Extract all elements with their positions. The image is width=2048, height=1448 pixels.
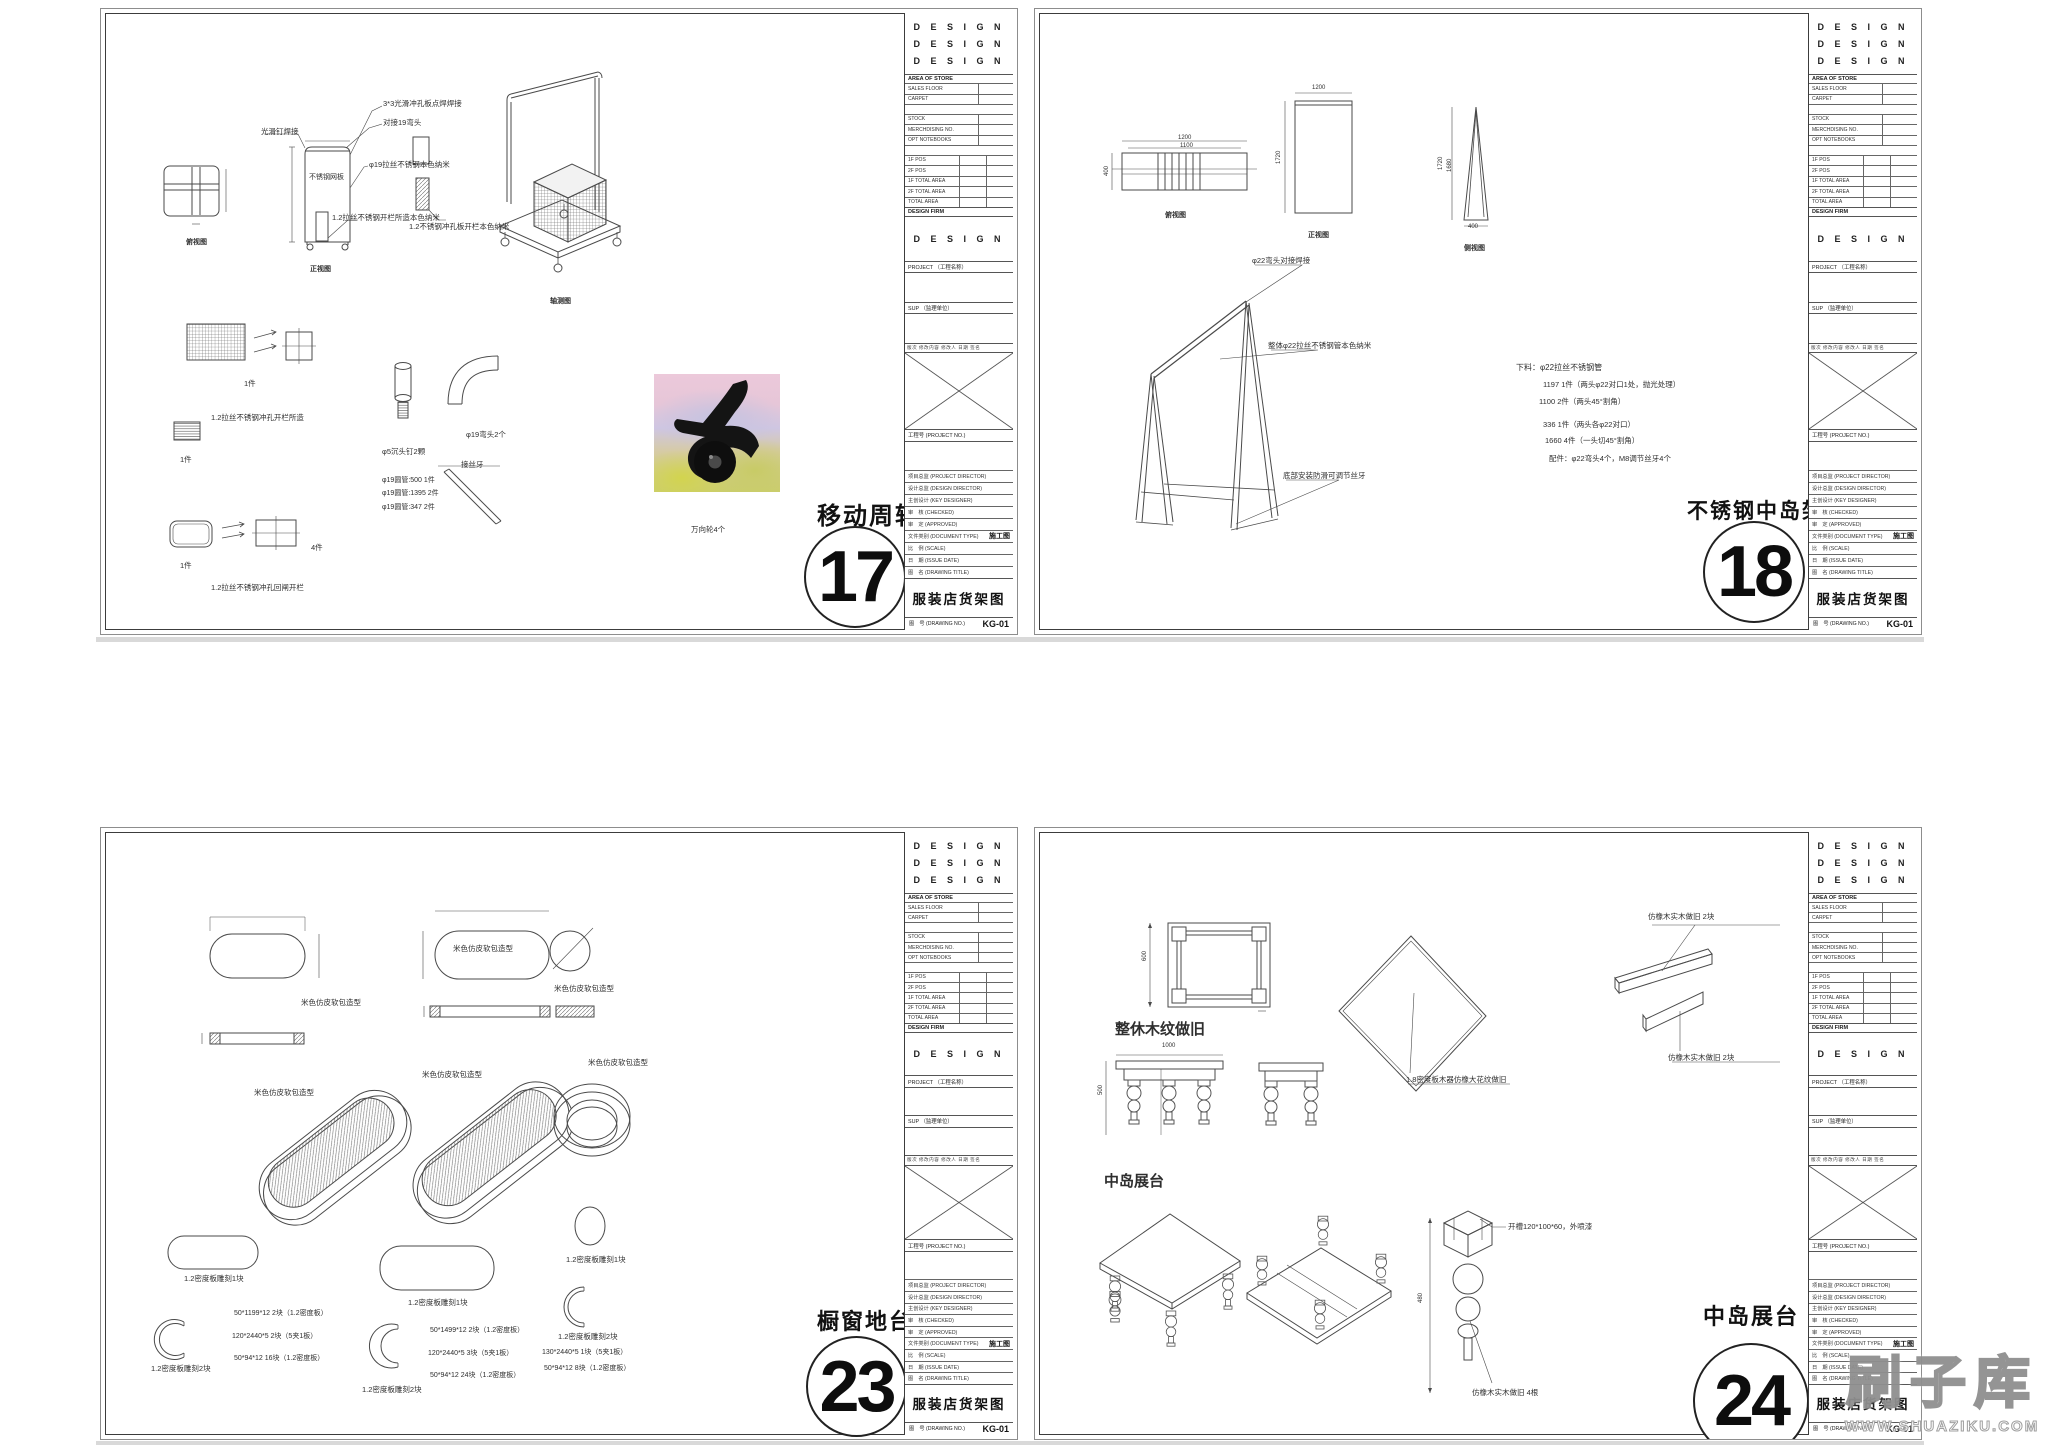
- titleblock-row: STOCK: [905, 114, 1013, 125]
- sheet-23-number: 23: [819, 1351, 893, 1423]
- titleblock-prow: SUP （监理单位）: [905, 1115, 1013, 1126]
- titleblock-row: OPT NOTEBOOKS: [905, 135, 1013, 146]
- titleblock-person: 文件类别 (DOCUMENT TYPE)施工图: [1809, 1337, 1917, 1349]
- titleblock-person: 项目总监 (PROJECT DIRECTOR): [1809, 470, 1917, 482]
- annotation-label: 1200: [1178, 135, 1191, 142]
- titleblock-row: 2F POS: [905, 165, 1013, 176]
- titleblock-person: 文件类别 (DOCUMENT TYPE)施工图: [1809, 530, 1917, 542]
- annotation-label: 1000: [1162, 1043, 1175, 1050]
- annotation-label: 1.2密度板雕刻1块: [566, 1256, 626, 1265]
- sheet-17: 3*3光滑冲孔板点焊焊接对接19弯头光滑钉焊接φ19拉丝不锈钢本色纳米不锈钢网板…: [100, 8, 1018, 635]
- titleblock-person: 审 核 (CHECKED): [1809, 1314, 1917, 1326]
- annotation-label: 1720: [1276, 151, 1283, 164]
- annotation-label: 俯视图: [186, 239, 207, 247]
- annotation-label: 正视图: [1308, 232, 1329, 240]
- titleblock-title: 服装店货架图: [905, 1384, 1013, 1422]
- annotation-label: 50*94*12 16块（1.2密度板）: [234, 1355, 324, 1363]
- annotation-label: 400: [1104, 166, 1111, 176]
- annotation-label: φ22弯头对接焊接: [1252, 257, 1310, 266]
- sheet-18-annotations: 12001100400俯视图12001720正视图17201680400侧视图φ…: [1040, 14, 1808, 629]
- titleblock-no: 图 号 (DRAWING NO.)KG-01: [905, 617, 1013, 630]
- titleblock-box: [905, 1251, 1013, 1280]
- titleblock-x: [1809, 1165, 1917, 1240]
- titleblock-person: 比 例 (SCALE): [1809, 1349, 1917, 1361]
- titleblock-row: 2F TOTAL AREA: [905, 1003, 1013, 1013]
- titleblock-gap: [905, 922, 1013, 931]
- titleblock-person: 主创设计 (KEY DESIGNER): [1809, 1303, 1917, 1315]
- titleblock-x: [905, 352, 1013, 429]
- titleblock-row: MERCHDISING NO.: [905, 124, 1013, 135]
- annotation-label: 开槽120*100*60，外喷漆: [1508, 1223, 1592, 1232]
- titleblock-row: CARPET: [905, 94, 1013, 105]
- titleblock-row: CARPET: [905, 912, 1013, 922]
- titleblock-person: 审 核 (CHECKED): [905, 506, 1013, 518]
- titleblock-h: AREA OF STORE: [1809, 893, 1917, 902]
- titleblock-person: 审 核 (CHECKED): [905, 1314, 1013, 1326]
- cad-sheet-collage: { "watermark": { "brand": "刷子库", "url": …: [0, 0, 2048, 1448]
- titleblock-row: 1F POS: [1809, 155, 1917, 166]
- annotation-label: 底部安装防滑可调节丝牙: [1283, 472, 1366, 481]
- annotation-label: 1.2拉丝不锈钢冲孔开栏所造: [211, 414, 304, 423]
- titleblock-person: 设计总监 (DESIGN DIRECTOR): [1809, 1291, 1917, 1303]
- sheet-23-title-label: 橱窗地台: [817, 1304, 913, 1336]
- titleblock-gap: [1809, 962, 1917, 971]
- titleblock-row: SALES FLOOR: [1809, 902, 1917, 912]
- titleblock-person: 审 核 (CHECKED): [1809, 506, 1917, 518]
- annotation-label: 整体φ22拉丝不锈钢管本色纳米: [1268, 342, 1371, 351]
- annotation-label: 50*94*12 8块（1.2密度板）: [544, 1365, 630, 1373]
- titleblock-row: SALES FLOOR: [905, 902, 1013, 912]
- annotation-label: 1680: [1447, 159, 1454, 172]
- annotation-label: 1720: [1438, 157, 1445, 170]
- sheet-24-annotations: 600整休木纹做旧1000500仿橡木实木做旧 2块仿橡木实木做旧 2块1.8密…: [1040, 833, 1808, 1434]
- titleblock-row: MERCHDISING NO.: [1809, 124, 1917, 135]
- titleblock-gap: [905, 104, 1013, 114]
- titleblock-row: TOTAL AREA: [1809, 197, 1917, 208]
- titleblock-row: 2F TOTAL AREA: [905, 186, 1013, 197]
- titleblock-prow: 工程号 (PROJECT NO.): [905, 1239, 1013, 1250]
- titleblock-h: DESIGN FIRM: [1809, 207, 1917, 216]
- titleblock-person: 图 名 (DRAWING TITLE): [905, 566, 1013, 578]
- titleblock-row: 2F TOTAL AREA: [1809, 186, 1917, 197]
- titleblock-row: STOCK: [1809, 932, 1917, 942]
- annotation-label: 120*2440*5 3块（5夹1板）: [428, 1350, 513, 1358]
- titleblock-h: DESIGN FIRM: [905, 1023, 1013, 1032]
- annotation-label: 400: [1468, 224, 1478, 231]
- titleblock-box: [1809, 313, 1917, 343]
- titleblock-person: 比 例 (SCALE): [1809, 542, 1917, 554]
- titleblock-row: 2F TOTAL AREA: [1809, 1003, 1917, 1013]
- annotation-label: 130*2440*5 1块（5夹1板）: [542, 1349, 627, 1357]
- annotation-label: 1.2密度板雕刻2块: [151, 1365, 211, 1374]
- titleblock-prow: PROJECT （工程名称）: [1809, 1075, 1917, 1086]
- titleblock-row: SALES FLOOR: [1809, 83, 1917, 94]
- sheet-23-annotations: 米色仿皮软包造型米色仿皮软包造型米色仿皮软包造型米色仿皮软包造型米色仿皮软包造型…: [106, 833, 904, 1434]
- titleblock-box: [905, 1127, 1013, 1156]
- sheet-18-number-badge: 18: [1703, 521, 1805, 623]
- annotation-label: 1660 4件（一头切45°割角）: [1545, 437, 1639, 446]
- titleblock-row: TOTAL AREA: [905, 1013, 1013, 1023]
- titleblock-prow: SUP （监理单位）: [1809, 302, 1917, 313]
- titleblock-row: 1F POS: [1809, 972, 1917, 982]
- annotation-label: 下料：φ22拉丝不锈钢管: [1516, 363, 1602, 372]
- titleblock-h: DESIGN FIRM: [905, 207, 1013, 216]
- sheet-23-number-badge: 23: [806, 1336, 907, 1437]
- titleblock-title: 服装店货架图: [1809, 578, 1917, 617]
- titleblock-row: 1F POS: [905, 972, 1013, 982]
- titleblock-title: 服装店货架图: [905, 578, 1013, 617]
- titleblock-x: [905, 1165, 1013, 1240]
- annotation-label: 1100: [1180, 143, 1193, 150]
- annotation-label: 1100 2件（两头45°割角）: [1539, 398, 1625, 407]
- titleblock-row: SALES FLOOR: [905, 83, 1013, 94]
- titleblock-row: MERCHDISING NO.: [905, 942, 1013, 952]
- titleblock-row: 2F POS: [1809, 982, 1917, 992]
- titleblock-row: CARPET: [1809, 94, 1917, 105]
- titleblock-person: 图 名 (DRAWING TITLE): [905, 1372, 1013, 1384]
- titleblock-row: 2F POS: [905, 982, 1013, 992]
- annotation-label: 600: [1142, 951, 1149, 961]
- titleblock-row: OPT NOTEBOOKS: [1809, 135, 1917, 146]
- titleblock-gap: [905, 962, 1013, 971]
- titleblock-revh: 版次 修改内容 修改人 日期 签名: [905, 343, 1013, 353]
- titleblock-person: 设计总监 (DESIGN DIRECTOR): [905, 1291, 1013, 1303]
- titleblock-firm: D E S I G N: [1809, 216, 1917, 261]
- titleblock-person: 日 期 (ISSUE DATE): [1809, 1361, 1917, 1373]
- titleblock-design: D E S I G ND E S I G ND E S I G N: [1809, 832, 1917, 893]
- titleblock-x: [1809, 352, 1917, 429]
- sheet-24: 600整休木纹做旧1000500仿橡木实木做旧 2块仿橡木实木做旧 2块1.8密…: [1034, 827, 1922, 1440]
- titleblock-no: 图 号 (DRAWING NO.)KG-01: [905, 1422, 1013, 1435]
- titleblock-person: 文件类别 (DOCUMENT TYPE)施工图: [905, 530, 1013, 542]
- annotation-label: 1.2拉丝不锈钢冲孔回闸开栏: [211, 584, 304, 593]
- annotation-label: 米色仿皮软包造型: [554, 985, 614, 994]
- titleblock-person: 主创设计 (KEY DESIGNER): [905, 494, 1013, 506]
- annotation-label: φ19拉丝不锈钢本色纳米: [369, 161, 450, 170]
- titleblock-person: 主创设计 (KEY DESIGNER): [1809, 494, 1917, 506]
- annotation-label: 1件: [180, 456, 192, 465]
- titleblock-row: OPT NOTEBOOKS: [905, 952, 1013, 962]
- annotation-label: 3*3光滑冲孔板点焊焊接: [383, 100, 462, 109]
- titleblock-person: 审 定 (APPROVED): [1809, 1326, 1917, 1338]
- titleblock-box: [905, 272, 1013, 302]
- annotation-label: 米色仿皮软包造型: [453, 945, 513, 954]
- titleblock-gap: [905, 145, 1013, 155]
- titleblock-prow: 工程号 (PROJECT NO.): [1809, 1239, 1917, 1250]
- annotation-label: 120*2440*5 2块（5夹1板）: [232, 1333, 317, 1341]
- annotation-label: 万向轮4个: [691, 526, 725, 535]
- annotation-label: 正视图: [310, 266, 331, 274]
- titleblock-person: 项目总监 (PROJECT DIRECTOR): [905, 1279, 1013, 1291]
- titleblock-person: 日 期 (ISSUE DATE): [1809, 554, 1917, 566]
- annotation-label: 米色仿皮软包造型: [588, 1059, 648, 1068]
- annotation-label: 1.2密度板雕刻1块: [184, 1275, 244, 1284]
- titleblock-title: 服装店货架图: [1809, 1384, 1917, 1422]
- titleblock-no: 图 号 (DRAWING NO.)KG-01: [1809, 617, 1917, 630]
- annotation-label: 仿橡木实木做旧 2块: [1648, 913, 1714, 922]
- titleblock-prow: PROJECT （工程名称）: [905, 261, 1013, 272]
- titleblock-row: 1F POS: [905, 155, 1013, 166]
- annotation-label: 仿橡木实木做旧 4根: [1472, 1389, 1538, 1398]
- annotation-label: φ19弯头2个: [466, 431, 506, 440]
- titleblock-box: [905, 1087, 1013, 1116]
- titleblock-prow: 工程号 (PROJECT NO.): [1809, 429, 1917, 440]
- annotation-label: φ19圆管:1395 2件: [382, 490, 439, 498]
- titleblock-gap: [1809, 104, 1917, 114]
- annotation-label: 1.2密度板雕刻1块: [408, 1299, 468, 1308]
- titleblock-person: 日 期 (ISSUE DATE): [905, 554, 1013, 566]
- titleblock-person: 图 名 (DRAWING TITLE): [1809, 566, 1917, 578]
- sheet-18-number: 18: [1717, 536, 1791, 608]
- annotation-label: 接丝牙: [461, 461, 484, 470]
- sheet-24-number: 24: [1714, 1365, 1788, 1437]
- annotation-label: 50*1199*12 2块（1.2密度板）: [234, 1310, 328, 1318]
- annotation-label: 1.2不锈钢冲孔板开栏本色纳米: [409, 223, 509, 232]
- annotation-label: 1件: [244, 380, 256, 389]
- titleblock-person: 项目总监 (PROJECT DIRECTOR): [905, 470, 1013, 482]
- titleblock-firm: D E S I G N: [905, 216, 1013, 261]
- annotation-label: 米色仿皮软包造型: [422, 1071, 482, 1080]
- annotation-label: 仿橡木实木做旧 2块: [1668, 1054, 1734, 1063]
- titleblock-person: 设计总监 (DESIGN DIRECTOR): [1809, 482, 1917, 494]
- titleblock-person: 审 定 (APPROVED): [1809, 518, 1917, 530]
- titleblock-box: [1809, 1087, 1917, 1116]
- titleblock-box: [1809, 1251, 1917, 1280]
- annotation-label: 整休木纹做旧: [1115, 1021, 1205, 1038]
- titleblock-row: STOCK: [905, 932, 1013, 942]
- titleblock-h: AREA OF STORE: [905, 893, 1013, 902]
- sheet-18: 12001100400俯视图12001720正视图17201680400侧视图φ…: [1034, 8, 1922, 635]
- titleblock-box: [1809, 1127, 1917, 1156]
- annotation-label: 50*94*12 24块（1.2密度板）: [430, 1372, 520, 1380]
- titleblock-row: 1F TOTAL AREA: [905, 992, 1013, 1002]
- annotation-label: 1.8密度板木器仿橡大花纹做旧: [1406, 1076, 1506, 1085]
- page-shadow-bottom-row: [96, 1441, 1924, 1445]
- titleblock-box: [905, 313, 1013, 343]
- titleblock-person: 日 期 (ISSUE DATE): [905, 1361, 1013, 1373]
- titleblock-person: 设计总监 (DESIGN DIRECTOR): [905, 482, 1013, 494]
- annotation-label: 侧视图: [1464, 245, 1485, 253]
- annotation-label: 1197 1件（两头φ22对口1处，抛光处理）: [1543, 381, 1680, 390]
- annotation-label: 米色仿皮软包造型: [301, 999, 361, 1008]
- annotation-label: 中岛展台: [1104, 1173, 1164, 1190]
- titleblock-box: [1809, 272, 1917, 302]
- annotation-label: 4件: [311, 544, 323, 553]
- titleblock-person: 项目总监 (PROJECT DIRECTOR): [1809, 1279, 1917, 1291]
- annotation-label: 对接19弯头: [383, 119, 421, 128]
- titleblock-h: DESIGN FIRM: [1809, 1023, 1917, 1032]
- titleblock-row: 1F TOTAL AREA: [905, 176, 1013, 187]
- annotation-label: 500: [1098, 1085, 1105, 1095]
- titleblock-prow: PROJECT （工程名称）: [905, 1075, 1013, 1086]
- annotation-label: 336 1件（两头各φ22对口）: [1543, 421, 1635, 430]
- titleblock-prow: PROJECT （工程名称）: [1809, 261, 1917, 272]
- titleblock-firm: D E S I G N: [1809, 1032, 1917, 1076]
- titleblock-gap: [1809, 145, 1917, 155]
- titleblock-row: 1F TOTAL AREA: [1809, 176, 1917, 187]
- titleblock-row: TOTAL AREA: [1809, 1013, 1917, 1023]
- titleblock-person: 审 定 (APPROVED): [905, 518, 1013, 530]
- annotation-label: φ19圆管:500 1件: [382, 477, 435, 485]
- sheet-24-title-block: D E S I G ND E S I G ND E S I G NAREA OF…: [1808, 832, 1917, 1435]
- sheet-17-title-block: D E S I G ND E S I G ND E S I G NAREA OF…: [904, 13, 1013, 630]
- titleblock-row: STOCK: [1809, 114, 1917, 125]
- titleblock-row: 1F TOTAL AREA: [1809, 992, 1917, 1002]
- annotation-label: 1.2密度板雕刻2块: [558, 1333, 618, 1342]
- titleblock-revh: 版次 修改内容 修改人 日期 签名: [1809, 343, 1917, 353]
- titleblock-person: 比 例 (SCALE): [905, 542, 1013, 554]
- annotation-label: 配件：φ22弯头4个，M8调节丝牙4个: [1549, 455, 1671, 464]
- titleblock-person: 比 例 (SCALE): [905, 1349, 1013, 1361]
- titleblock-row: CARPET: [1809, 912, 1917, 922]
- titleblock-prow: 工程号 (PROJECT NO.): [905, 429, 1013, 440]
- titleblock-h: AREA OF STORE: [905, 74, 1013, 83]
- annotation-label: 1200: [1312, 85, 1325, 92]
- annotation-label: φ5沉头钉2颗: [382, 448, 425, 457]
- titleblock-firm: D E S I G N: [905, 1032, 1013, 1076]
- sheet-17-number-badge: 17: [804, 526, 906, 628]
- annotation-label: φ19圆管:347 2件: [382, 504, 435, 512]
- annotation-label: 光滑钉焊接: [261, 128, 299, 137]
- annotation-label: 不锈钢网板: [309, 174, 344, 182]
- sheet-23-title-block: D E S I G ND E S I G ND E S I G NAREA OF…: [904, 832, 1013, 1435]
- titleblock-person: 主创设计 (KEY DESIGNER): [905, 1303, 1013, 1315]
- titleblock-h: AREA OF STORE: [1809, 74, 1917, 83]
- sheet-17-number: 17: [818, 541, 892, 613]
- titleblock-row: OPT NOTEBOOKS: [1809, 952, 1917, 962]
- annotation-label: 50*1499*12 2块（1.2密度板）: [430, 1327, 524, 1335]
- titleblock-gap: [1809, 922, 1917, 931]
- titleblock-design: D E S I G ND E S I G ND E S I G N: [905, 13, 1013, 74]
- titleblock-no: 图 号 (DRAWING NO.)KG-01: [1809, 1422, 1917, 1435]
- titleblock-person: 图 名 (DRAWING TITLE): [1809, 1372, 1917, 1384]
- annotation-label: 480: [1418, 1293, 1425, 1303]
- titleblock-prow: SUP （监理单位）: [905, 302, 1013, 313]
- annotation-label: 俯视图: [1165, 212, 1186, 220]
- annotation-label: 米色仿皮软包造型: [254, 1089, 314, 1098]
- sheet-18-title-block: D E S I G ND E S I G ND E S I G NAREA OF…: [1808, 13, 1917, 630]
- sheet-17-annotations: 3*3光滑冲孔板点焊焊接对接19弯头光滑钉焊接φ19拉丝不锈钢本色纳米不锈钢网板…: [106, 14, 904, 629]
- sheet-24-title-label: 中岛展台: [1703, 1299, 1799, 1331]
- page-shadow-top-row: [96, 637, 1924, 642]
- titleblock-revh: 版次 修改内容 修改人 日期 签名: [905, 1155, 1013, 1164]
- titleblock-row: 2F POS: [1809, 165, 1917, 176]
- titleblock-person: 文件类别 (DOCUMENT TYPE)施工图: [905, 1337, 1013, 1349]
- titleblock-revh: 版次 修改内容 修改人 日期 签名: [1809, 1155, 1917, 1164]
- titleblock-row: TOTAL AREA: [905, 197, 1013, 208]
- titleblock-design: D E S I G ND E S I G ND E S I G N: [905, 832, 1013, 893]
- titleblock-design: D E S I G ND E S I G ND E S I G N: [1809, 13, 1917, 74]
- titleblock-box: [905, 441, 1013, 471]
- annotation-label: 1件: [180, 562, 192, 571]
- annotation-label: 1.2密度板雕刻2块: [362, 1386, 422, 1395]
- titleblock-row: MERCHDISING NO.: [1809, 942, 1917, 952]
- titleblock-prow: SUP （监理单位）: [1809, 1115, 1917, 1126]
- sheet-23: 米色仿皮软包造型米色仿皮软包造型米色仿皮软包造型米色仿皮软包造型米色仿皮软包造型…: [100, 827, 1018, 1440]
- titleblock-person: 审 定 (APPROVED): [905, 1326, 1013, 1338]
- titleblock-box: [1809, 441, 1917, 471]
- annotation-label: 轴测图: [550, 298, 571, 306]
